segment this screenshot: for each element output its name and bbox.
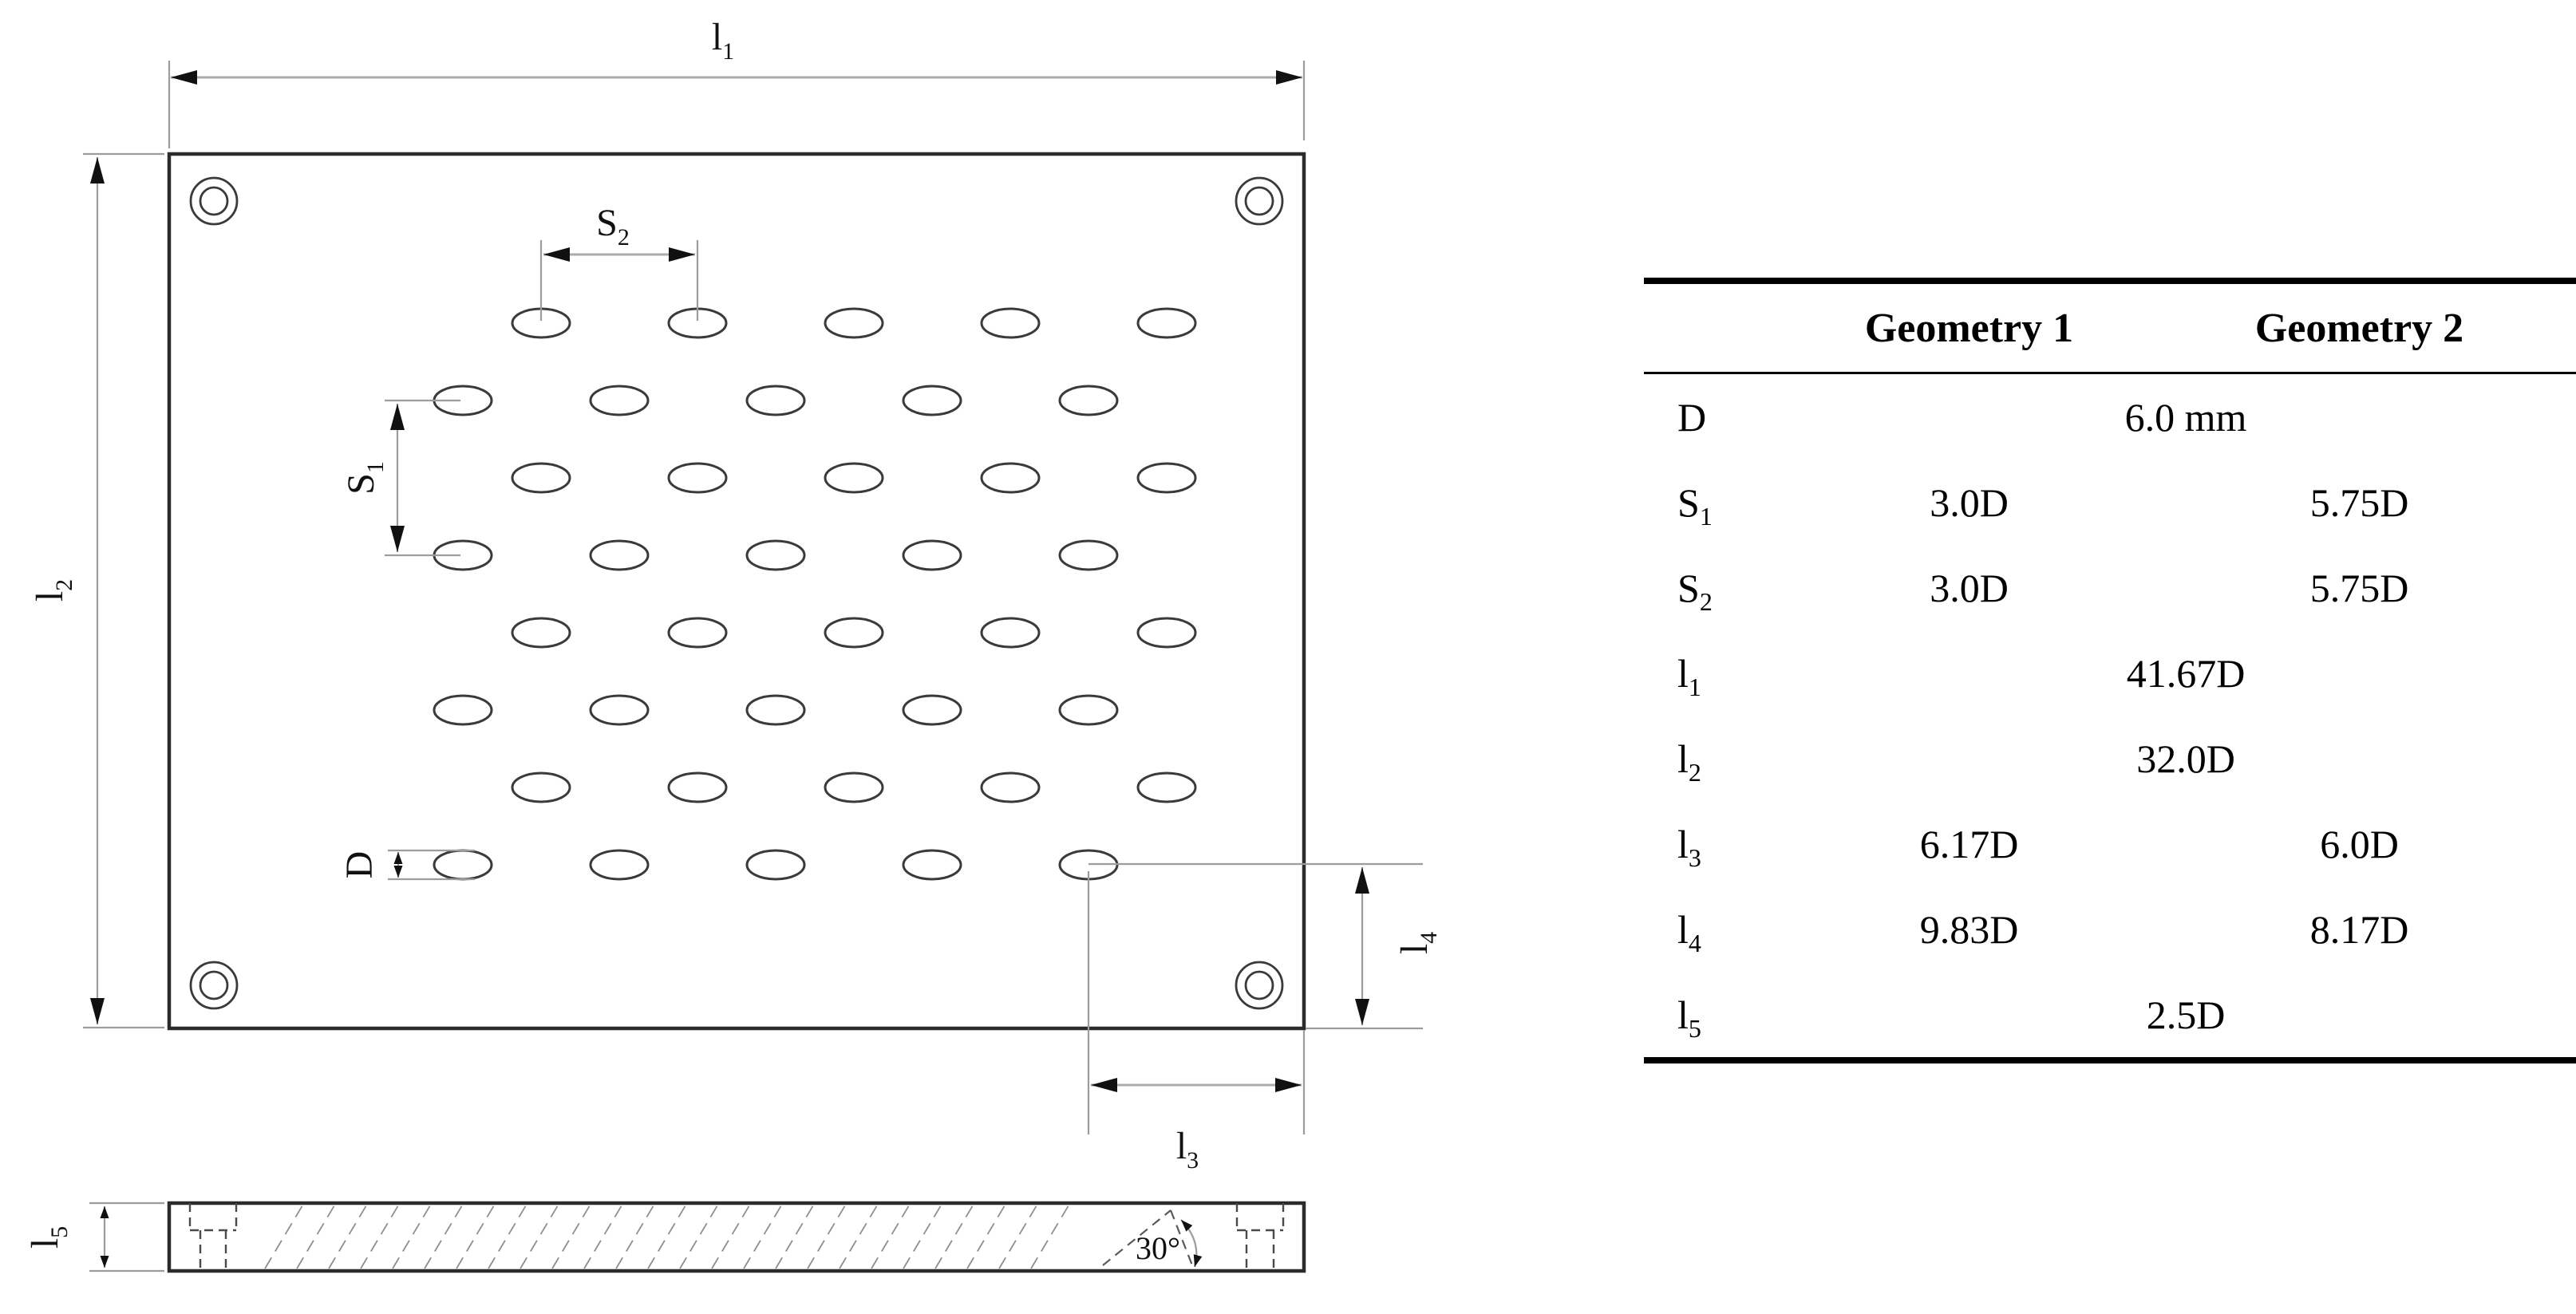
dim-label-l2: l2 [29,579,77,602]
dim-l1: l1 [169,16,1304,148]
plate-hole [982,773,1039,802]
plate-hole [1060,541,1117,570]
table-row: l3 6.17D6.0D [1644,801,2576,886]
row-value-geometry2: 5.75D [2143,479,2576,526]
table-header-geometry2: Geometry 2 [2143,305,2576,352]
plate-hole [512,618,570,647]
plate-hole [982,309,1039,337]
row-value-geometry2: 6.0D [2143,821,2576,867]
plate-hole [903,541,961,570]
row-value-span: 2.5D [1796,992,2576,1038]
dim-label-l1: l1 [712,16,734,65]
plate-hole [982,618,1039,647]
row-value-geometry2: 5.75D [2143,565,2576,611]
plate-hole [1138,773,1195,802]
row-label: l3 [1644,821,1796,867]
plate-hole [434,696,492,724]
plate-hole [591,386,648,415]
table-row: S1 3.0D5.75D [1644,460,2576,545]
plate-hole [512,464,570,492]
table-header-row: Geometry 1 Geometry 2 [1644,284,2576,374]
plate-hole [747,386,804,415]
table-row: l2 32.0D [1644,716,2576,801]
section-view: 30° l5 [24,1203,1304,1271]
dim-l5: l5 [24,1203,164,1271]
row-value-span: 41.67D [1796,650,2576,696]
row-label: l2 [1644,736,1796,782]
row-label: l5 [1644,992,1796,1038]
angle-label: 30° [1136,1230,1180,1266]
row-value-geometry1: 3.0D [1796,479,2143,526]
plate-hole [903,386,961,415]
plate-hole [669,773,726,802]
dim-label-l3: l3 [1176,1125,1199,1174]
plate-hole [1138,464,1195,492]
table-row: l4 9.83D8.17D [1644,886,2576,972]
dim-label-l5: l5 [24,1226,73,1249]
plate-hole [434,850,492,879]
row-value-geometry1: 3.0D [1796,565,2143,611]
plate-hole [591,541,648,570]
geometry-table: Geometry 1 Geometry 2 D 6.0 mm S1 3.0D5.… [1644,278,2576,1063]
plate-hole [903,850,961,879]
plate-hole [747,696,804,724]
dim-label-d: D [338,851,381,879]
row-label: l1 [1644,650,1796,696]
section-outline [169,1203,1304,1271]
table-header-geometry1: Geometry 1 [1796,305,2143,352]
plate-hole [669,618,726,647]
row-value-geometry1: 6.17D [1796,821,2143,867]
row-value-span: 6.0 mm [1796,394,2576,440]
row-label: D [1644,394,1796,440]
plate-hole [825,773,883,802]
plate-hole [825,464,883,492]
plate-hole [825,309,883,337]
plate-hole [512,773,570,802]
plate-hole [1060,696,1117,724]
plate-hole [747,541,804,570]
table-row: S2 3.0D5.75D [1644,545,2576,630]
row-label: l4 [1644,906,1796,953]
row-label: S2 [1644,565,1796,611]
plate-hole [747,850,804,879]
plate-hole [1060,386,1117,415]
plate-hole [903,696,961,724]
plate-outline [169,154,1304,1028]
front-view: l1 l2 S2 S1 D [29,16,1442,1174]
table-row: l5 2.5D [1644,972,2576,1057]
table-row: l1 41.67D [1644,630,2576,716]
table-body: D 6.0 mm S1 3.0D5.75D S2 3.0D5.75D l1 41… [1644,374,2576,1057]
table-row: D 6.0 mm [1644,374,2576,460]
row-value-geometry1: 9.83D [1796,906,2143,953]
row-value-geometry2: 8.17D [2143,906,2576,953]
plate-hole [591,696,648,724]
plate-hole [825,618,883,647]
plate-hole [982,464,1039,492]
plate-hole [669,464,726,492]
dim-label-l4: l4 [1393,932,1442,954]
row-value-span: 32.0D [1796,736,2576,782]
dim-l2: l2 [29,154,164,1028]
plate-hole [1138,309,1195,337]
row-label: S1 [1644,479,1796,526]
plate-hole [591,850,648,879]
plate-hole [1138,618,1195,647]
figure-canvas: l1 l2 S2 S1 D [0,0,2576,1314]
